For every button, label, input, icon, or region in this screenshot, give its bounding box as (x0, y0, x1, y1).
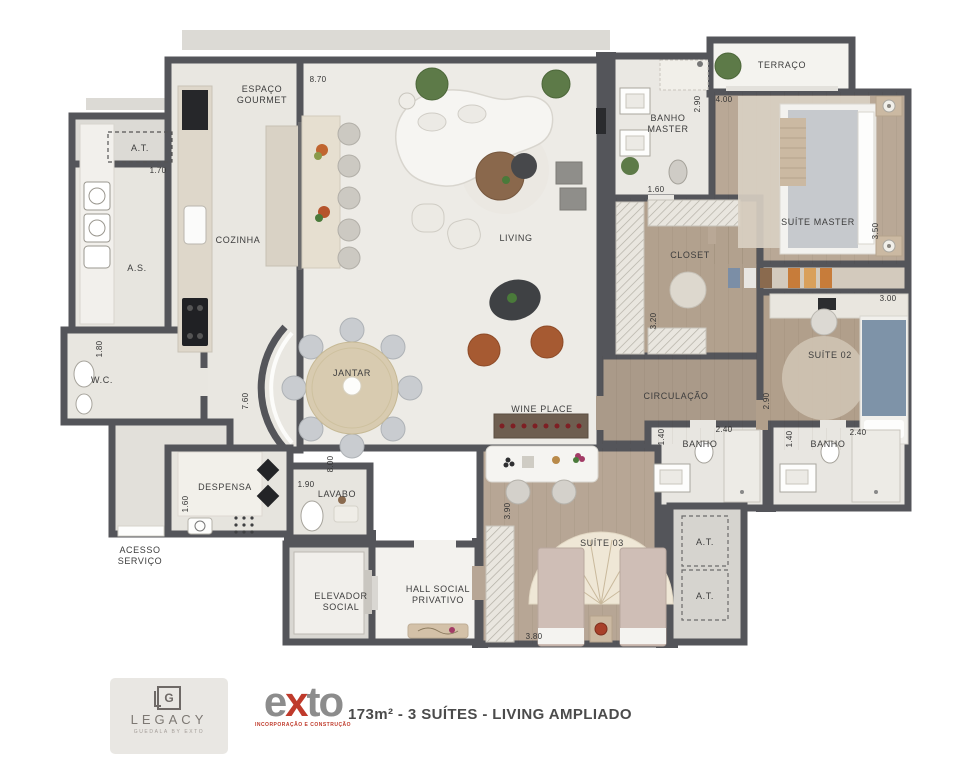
room-label: GOURMET (237, 95, 287, 105)
room-label: ELEVADOR (314, 591, 367, 601)
plant-icon (542, 70, 570, 98)
dimension-label: 7.60 (241, 392, 250, 409)
dimension-label: 2.90 (762, 392, 771, 409)
room-label: CLOSET (670, 250, 710, 260)
laundry-tub-icon (84, 246, 110, 268)
exto-wordmark: exto (248, 682, 358, 722)
dimension-label: 1.60 (648, 185, 665, 194)
floor-plan-svg: ESPAÇOGOURMETCOZINHAA.T.A.S.W.C.DESPENSA… (0, 0, 978, 660)
exto-subtitle: INCORPORAÇÃO E CONSTRUÇÃO (248, 722, 358, 728)
dimension-label: 3.80 (526, 632, 543, 641)
exto-logo: exto INCORPORAÇÃO E CONSTRUÇÃO (248, 682, 358, 728)
room-label: CIRCULAÇÃO (643, 391, 708, 401)
room-label: LIVING (499, 233, 532, 243)
room-label: SERVIÇO (118, 556, 163, 566)
desk-chair (811, 309, 837, 335)
room-label: WINE PLACE (511, 404, 573, 414)
laptop-icon (818, 298, 836, 310)
legacy-name: LEGACY (110, 712, 228, 727)
dimension-label: 1.40 (785, 430, 794, 447)
closet-rack (616, 202, 644, 354)
closet-rack (486, 526, 514, 642)
wine-rack (494, 414, 588, 438)
room-label: DESPENSA (198, 482, 252, 492)
room-label: SOCIAL (323, 602, 360, 612)
room-label: MASTER (647, 124, 688, 134)
room-label: JANTAR (333, 368, 371, 378)
terracotta-chair (468, 334, 500, 366)
dimension-label: 2.40 (850, 428, 867, 437)
plant-icon (416, 68, 448, 100)
gourmet-table (302, 116, 340, 268)
room-label: A.T. (131, 143, 149, 153)
cooktop-icon (182, 298, 208, 346)
toilet-icon (669, 160, 687, 184)
dining-set (282, 318, 422, 458)
room-label: PRIVATIVO (412, 595, 464, 605)
terracotta-chair (531, 326, 563, 358)
room-label: BANHO (810, 439, 845, 449)
room-label: BANHO (682, 439, 717, 449)
dimension-label: 3.20 (649, 312, 658, 329)
pouf (670, 272, 706, 308)
lamp-icon (595, 623, 607, 635)
room-label: LAVABO (318, 489, 356, 499)
legacy-monogram-icon: G (157, 686, 181, 710)
dimension-label: 3.50 (871, 222, 880, 239)
legacy-tagline: GUEDALA BY EXTO (110, 729, 228, 735)
bar-counter (486, 446, 598, 482)
room-at-shaft (670, 506, 744, 642)
room-label: BANHO (650, 113, 685, 123)
plant-icon (715, 53, 741, 79)
room-label: A.S. (127, 263, 146, 273)
floorplan-page: { "plan": { "labels": [ {"text":"ESPAÇO"… (0, 0, 978, 768)
armchair (412, 204, 444, 232)
kitchen-sink-icon (184, 206, 206, 244)
legacy-logo: G LEGACY GUEDALA BY EXTO (110, 678, 228, 754)
dimension-label: 1.90 (298, 480, 315, 489)
room-label: COZINHA (216, 235, 261, 245)
dimension-label: 1.40 (657, 428, 666, 445)
room-label: ESPAÇO (242, 84, 282, 94)
dimension-label: 2.40 (716, 425, 733, 434)
service-doormat (118, 526, 164, 536)
room-label: SUÍTE 02 (808, 350, 852, 360)
dimension-label: 1.80 (95, 340, 104, 357)
room-label: A.T. (696, 591, 714, 601)
plan-caption: 173m² - 3 SUÍTES - LIVING AMPLIADO (348, 706, 632, 723)
dimension-label: 8.70 (310, 75, 327, 84)
closet-rack (648, 328, 706, 354)
dimension-label: 8.00 (326, 455, 335, 472)
dimension-label: 4.00 (716, 95, 733, 104)
oven-icon (182, 90, 208, 130)
dimension-label: 2.90 (693, 95, 702, 112)
room-label: SUÍTE MASTER (781, 217, 855, 227)
tv-icon (596, 108, 606, 134)
floor-plan: ESPAÇOGOURMETCOZINHAA.T.A.S.W.C.DESPENSA… (0, 0, 978, 660)
room-label: SUÍTE 03 (580, 538, 624, 548)
bidet-icon (76, 394, 92, 414)
room-label: W.C. (91, 375, 113, 385)
dimension-label: 1.70 (150, 166, 167, 175)
island-counter (266, 126, 300, 266)
dimension-label: 1.60 (181, 495, 190, 512)
dimension-label: 3.90 (503, 502, 512, 519)
room-label: ACESSO (119, 545, 160, 555)
room-label: A.T. (696, 537, 714, 547)
washer-icon (84, 182, 110, 210)
plant-icon (621, 157, 639, 175)
room-label: HALL SOCIAL (406, 584, 470, 594)
lavabo-sink-icon (301, 501, 323, 531)
room-lavabo (290, 466, 370, 538)
suite02-rug (782, 336, 866, 420)
dimension-label: 3.00 (880, 294, 897, 303)
room-label: TERRAÇO (758, 60, 806, 70)
closet-rack (648, 200, 740, 226)
